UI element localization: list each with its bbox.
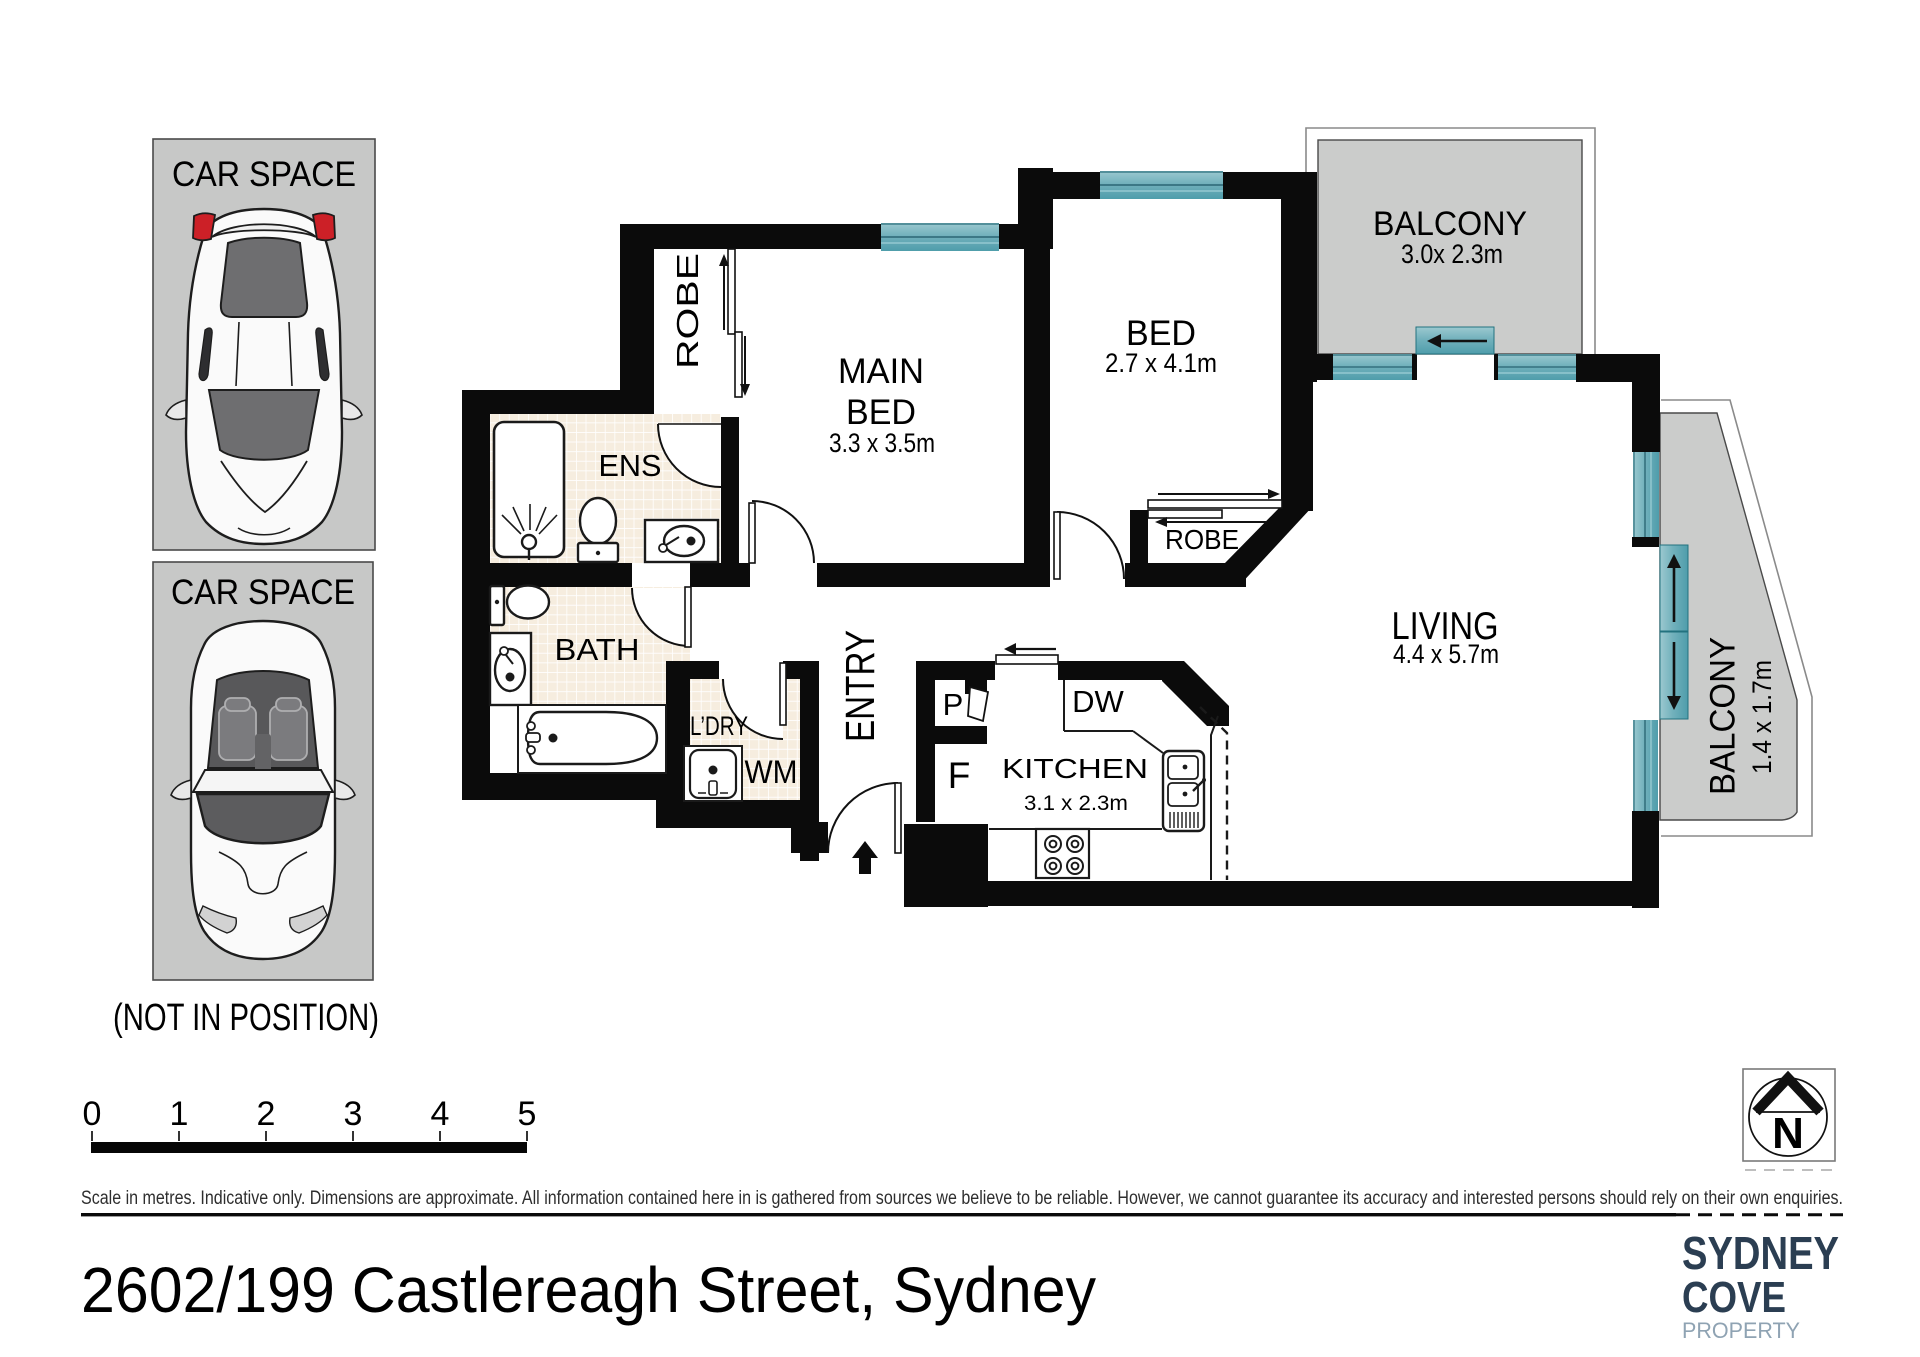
svg-text:PROPERTY: PROPERTY — [1682, 1318, 1800, 1343]
svg-text:BALCONY: BALCONY — [1703, 637, 1742, 795]
svg-text:5: 5 — [518, 1095, 537, 1133]
svg-text:MAIN: MAIN — [838, 352, 924, 391]
svg-text:N: N — [1772, 1109, 1804, 1158]
svg-text:BALCONY: BALCONY — [1373, 205, 1527, 243]
svg-text:3: 3 — [344, 1095, 363, 1133]
svg-text:ROBE: ROBE — [1165, 524, 1239, 555]
svg-text:P: P — [943, 687, 964, 722]
svg-text:2.7 x 4.1m: 2.7 x 4.1m — [1105, 348, 1217, 378]
svg-text:WM: WM — [745, 754, 798, 790]
svg-text:BED: BED — [846, 393, 916, 432]
svg-text:Scale in metres. Indicative on: Scale in metres. Indicative only. Dimens… — [81, 1188, 1843, 1209]
svg-text:4: 4 — [431, 1095, 450, 1133]
svg-text:CAR SPACE: CAR SPACE — [172, 155, 356, 194]
svg-text:COVE: COVE — [1682, 1273, 1786, 1322]
svg-text:BATH: BATH — [555, 632, 640, 667]
svg-text:KITCHEN: KITCHEN — [1002, 753, 1148, 784]
svg-text:1: 1 — [170, 1095, 189, 1133]
svg-text:3.0x 2.3m: 3.0x 2.3m — [1401, 239, 1503, 269]
svg-text:DW: DW — [1072, 684, 1124, 719]
svg-text:2602/199 Castlereagh Street, S: 2602/199 Castlereagh Street, Sydney — [81, 1254, 1096, 1326]
svg-text:(NOT IN POSITION): (NOT IN POSITION) — [113, 997, 379, 1039]
svg-text:ROBE: ROBE — [670, 253, 705, 369]
svg-text:L’DRY: L’DRY — [690, 711, 748, 741]
svg-text:F: F — [948, 755, 971, 796]
svg-text:3.3 x 3.5m: 3.3 x 3.5m — [829, 428, 935, 458]
svg-text:ENTRY: ENTRY — [837, 630, 883, 742]
svg-text:0: 0 — [83, 1095, 102, 1133]
svg-text:1.4 x 1.7m: 1.4 x 1.7m — [1747, 660, 1777, 774]
svg-text:SYDNEY: SYDNEY — [1682, 1227, 1839, 1279]
svg-text:ENS: ENS — [599, 448, 662, 483]
svg-text:2: 2 — [257, 1095, 276, 1133]
svg-text:3.1 x 2.3m: 3.1 x 2.3m — [1024, 792, 1128, 815]
svg-text:4.4 x 5.7m: 4.4 x 5.7m — [1393, 639, 1499, 669]
svg-text:CAR SPACE: CAR SPACE — [171, 573, 355, 612]
